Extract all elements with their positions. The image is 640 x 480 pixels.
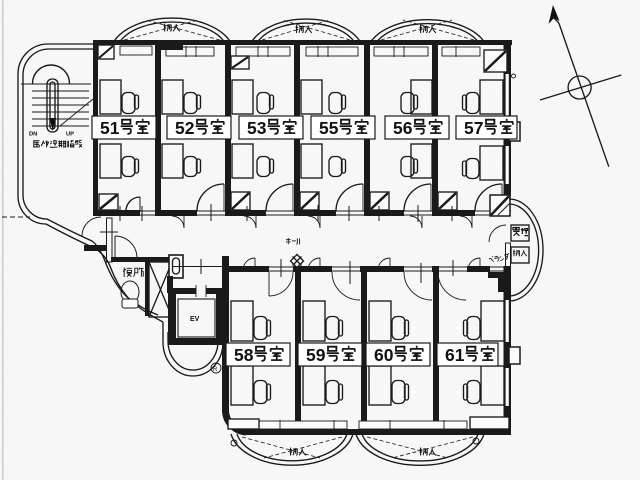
svg-text:61: 61: [445, 345, 465, 365]
svg-text:53: 53: [247, 118, 267, 138]
svg-text:56: 56: [393, 118, 413, 138]
svg-text:51: 51: [100, 118, 120, 138]
svg-text:DN: DN: [29, 132, 37, 138]
svg-text:59: 59: [306, 345, 326, 365]
svg-text:55: 55: [319, 118, 339, 138]
svg-text:EV: EV: [190, 316, 200, 323]
svg-text:58: 58: [234, 345, 254, 365]
svg-text:R: R: [213, 367, 218, 373]
svg-text:60: 60: [374, 345, 394, 365]
svg-text:52: 52: [175, 118, 195, 138]
svg-text:57: 57: [464, 118, 483, 138]
svg-text:UP: UP: [66, 132, 74, 138]
